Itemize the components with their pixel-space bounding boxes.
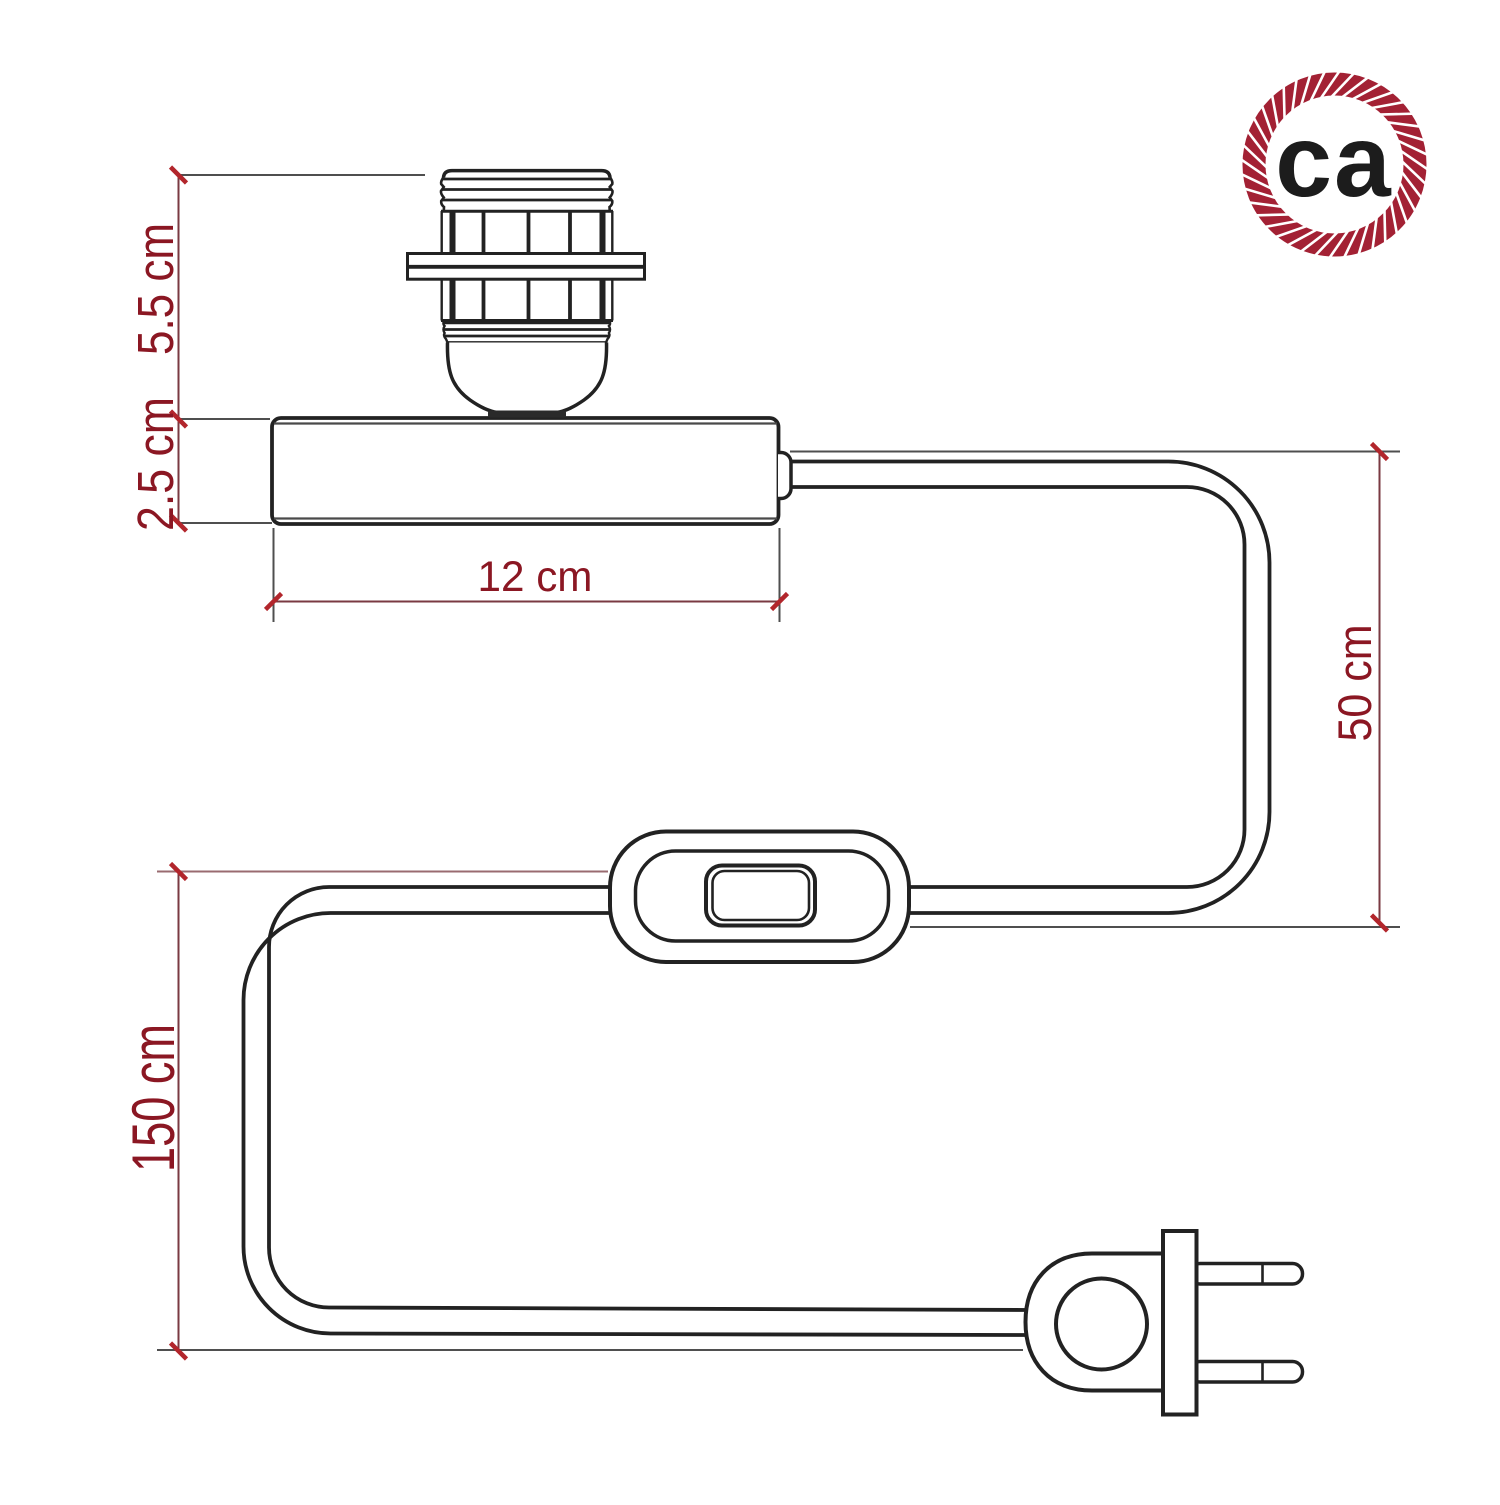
svg-text:12 cm: 12 cm <box>478 553 593 601</box>
svg-text:ca: ca <box>1275 104 1392 218</box>
svg-text:2.5 cm: 2.5 cm <box>127 397 184 531</box>
svg-text:5.5 cm: 5.5 cm <box>127 223 184 355</box>
svg-text:150 cm: 150 cm <box>120 1024 187 1172</box>
svg-text:50 cm: 50 cm <box>1328 625 1381 742</box>
